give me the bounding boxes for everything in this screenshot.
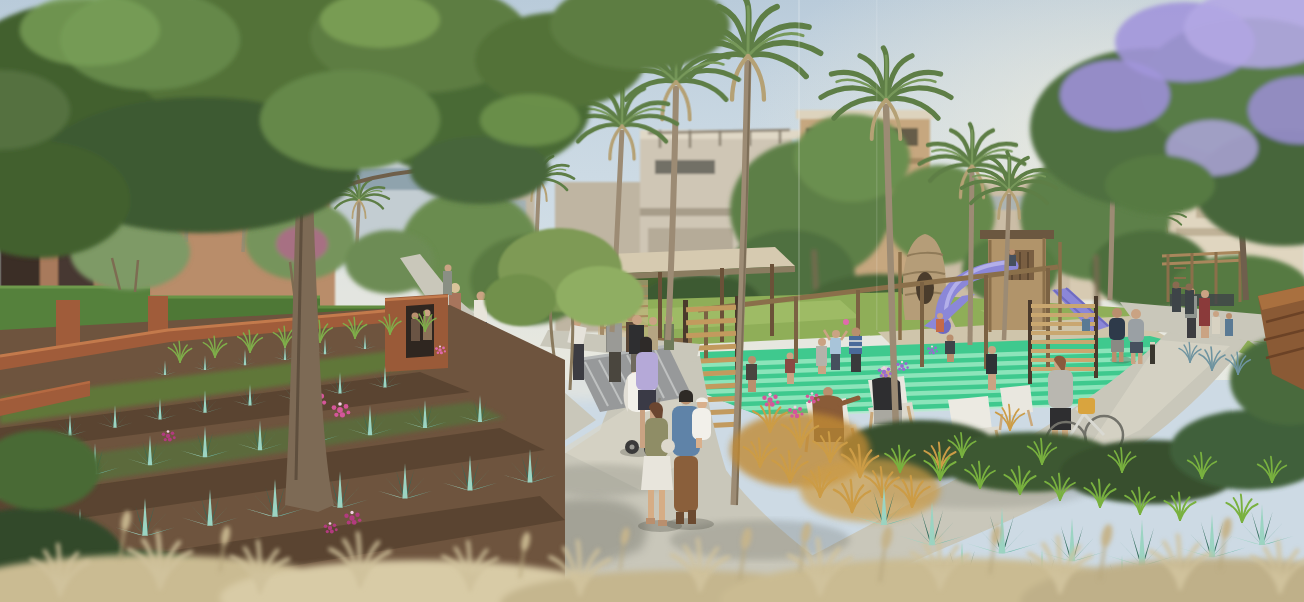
path-bollard: [1150, 342, 1155, 364]
stair-passage: [385, 294, 448, 372]
rendered-scene: [0, 0, 1304, 602]
scene-svg: [0, 0, 1304, 602]
lounge-chair: [1000, 385, 1033, 430]
